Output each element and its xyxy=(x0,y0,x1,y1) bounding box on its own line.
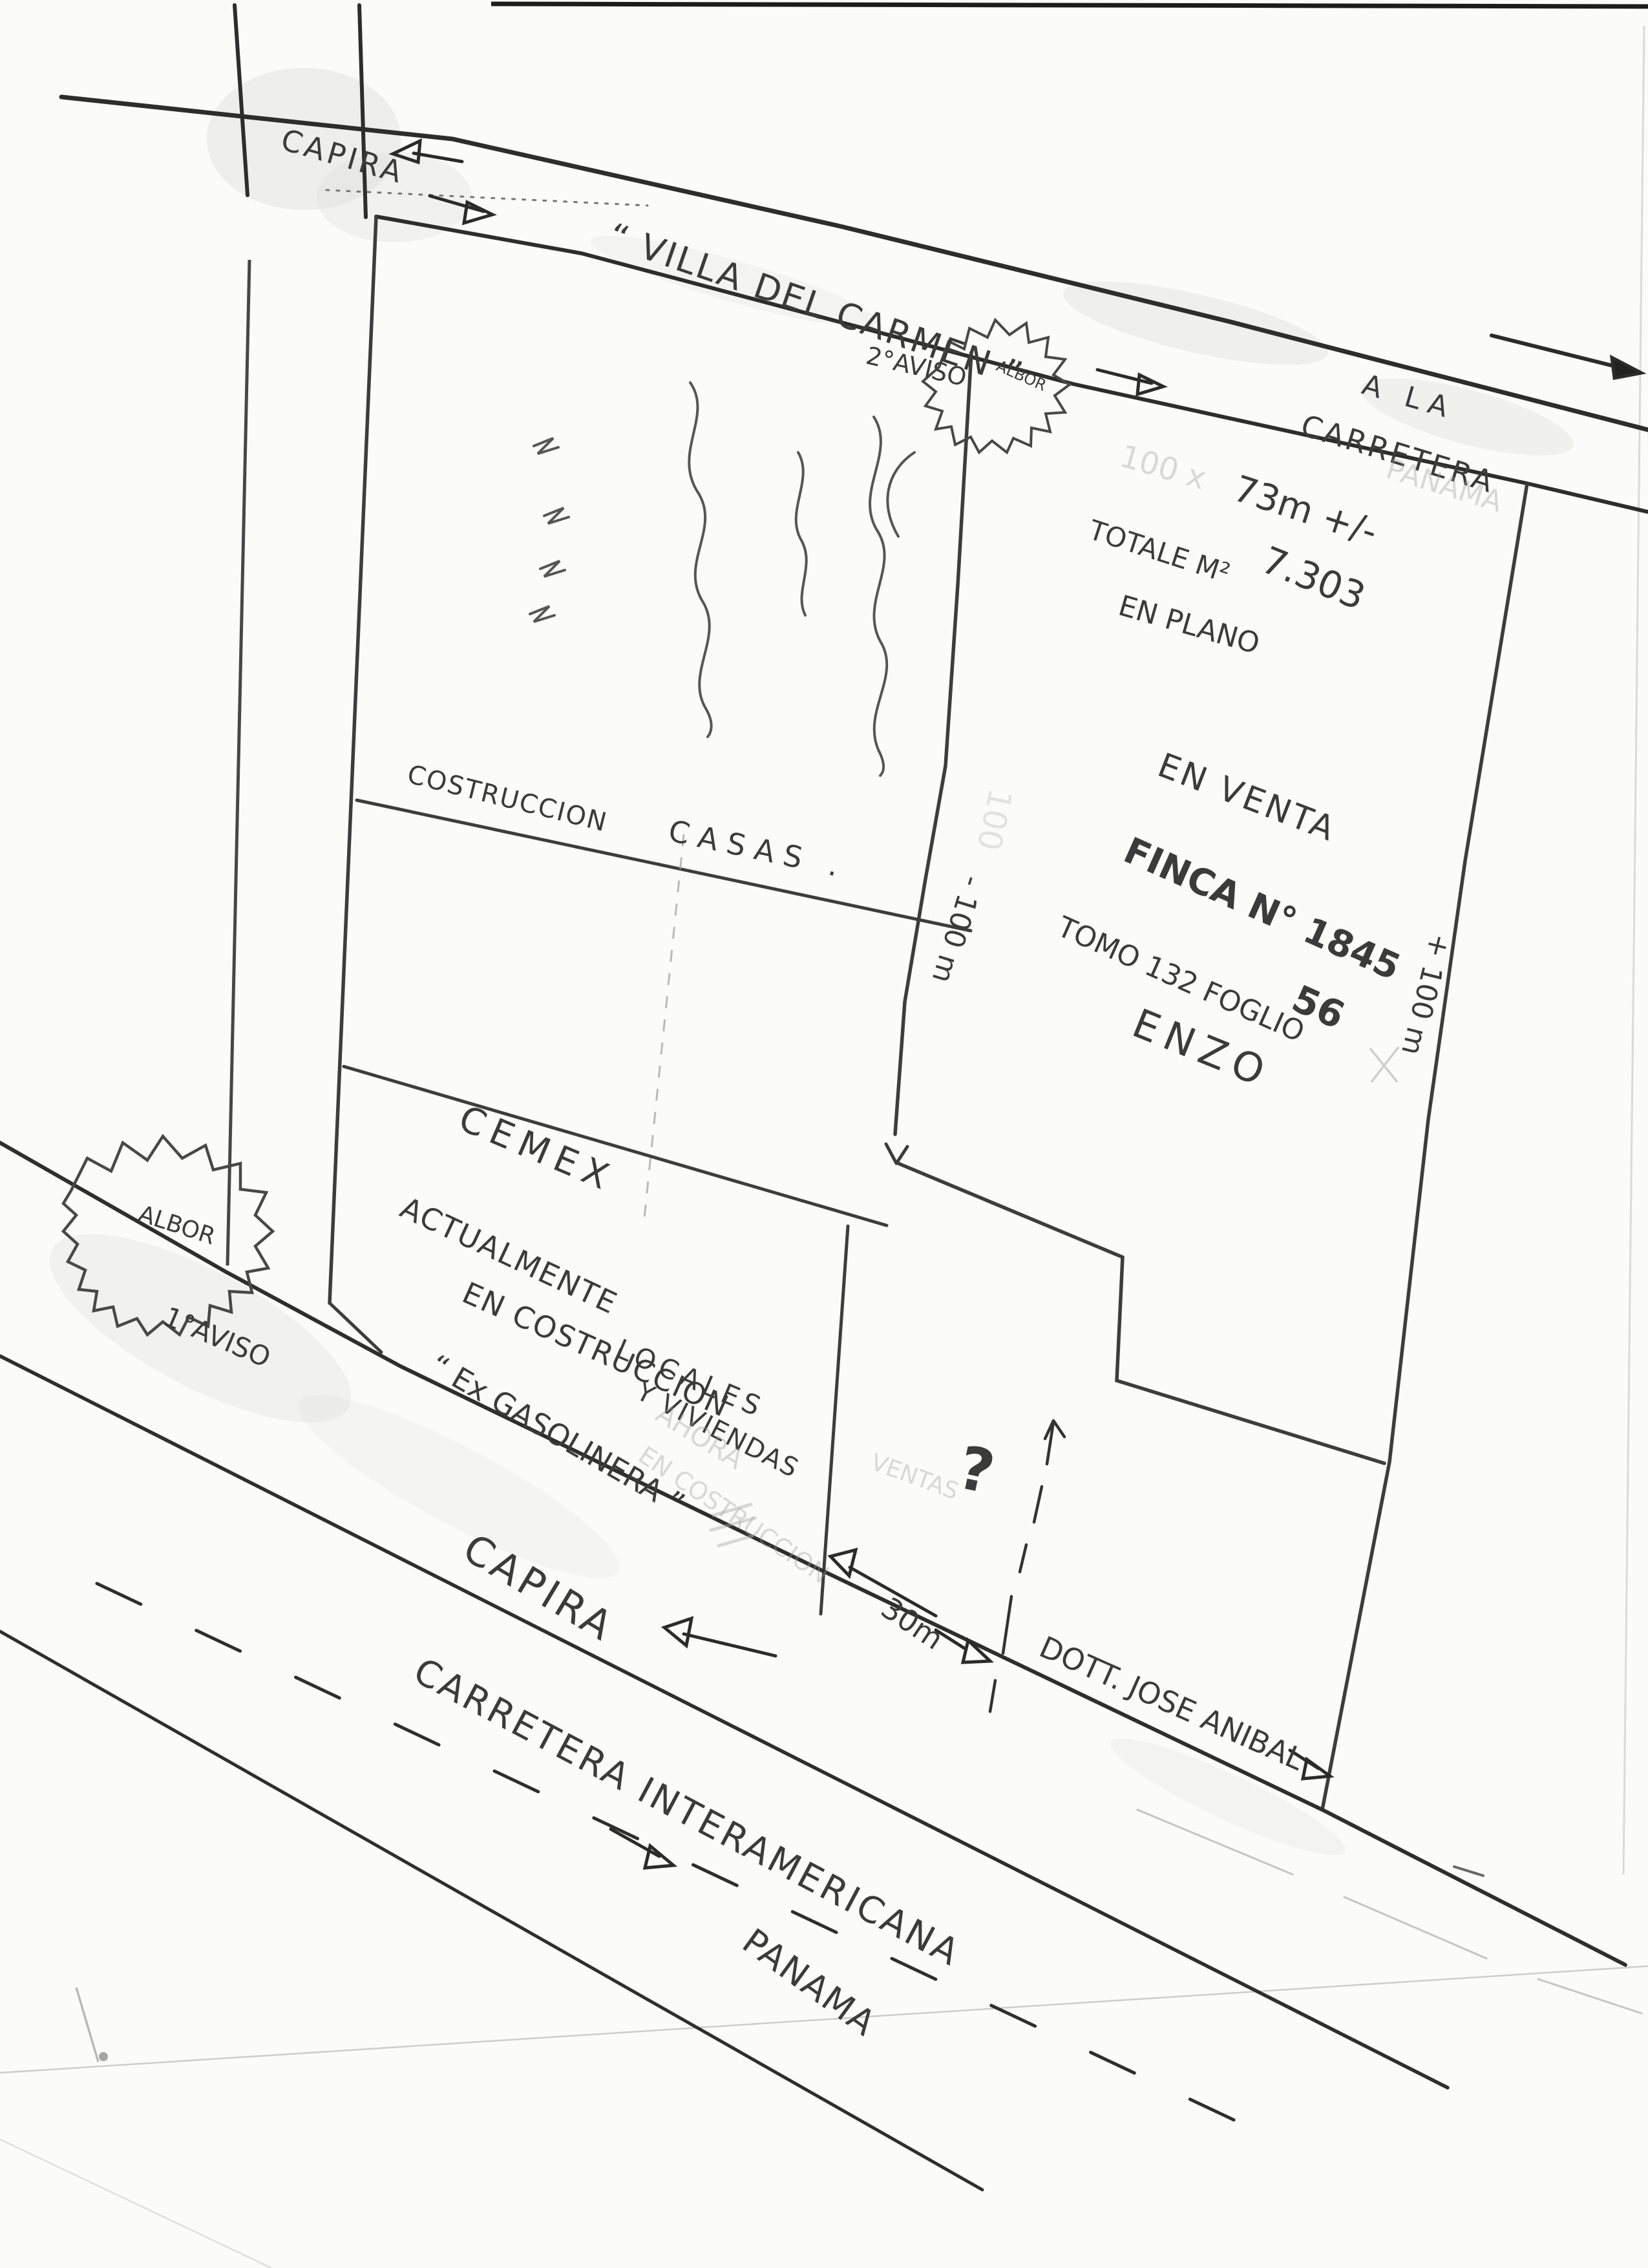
faint-bottom-left-line xyxy=(0,2139,271,2268)
panama-right-arrow-icon xyxy=(611,1829,673,1868)
step-boundary-line xyxy=(898,1163,1384,1463)
zigzag-mark xyxy=(530,606,555,622)
smudge xyxy=(281,1368,637,1606)
subparcel-boundaries xyxy=(821,1163,1384,1614)
en-venta-label: EN VENTA xyxy=(1152,746,1342,849)
costruccion-label: COSTRUCCION xyxy=(405,759,611,838)
stray-dash xyxy=(1454,1867,1483,1876)
wavy-line xyxy=(689,383,711,737)
stray-curve xyxy=(887,452,914,536)
sketch-canvas: CAPIRA “ VILLA DEL CARMEN ” 2°AVISO ALBO… xyxy=(0,0,1648,2268)
scan-right-edge-line xyxy=(1623,26,1644,1874)
vegetation-squiggles xyxy=(530,383,887,776)
capira-bottom-left-arrow-icon xyxy=(664,1618,776,1656)
ventas-faint-label: VENTAS xyxy=(867,1449,962,1505)
center-divider-line xyxy=(895,352,971,1134)
smudge xyxy=(1057,264,1334,382)
totale-label: TOTALE M² xyxy=(1084,514,1234,589)
en-plano-label: EN PLANO xyxy=(1115,589,1263,661)
depth-middle-label: - 100 m xyxy=(925,872,989,987)
a-la-carretera-arrow-shaft xyxy=(1492,335,1623,368)
scanned-sketch-page: CAPIRA “ VILLA DEL CARMEN ” 2°AVISO ALBO… xyxy=(0,0,1648,2268)
pencil-tick xyxy=(76,1987,98,2062)
scan-top-edge-line xyxy=(491,4,1648,6)
zigzag-mark xyxy=(534,438,558,454)
casas-divider-line xyxy=(357,800,971,931)
wavy-line xyxy=(870,417,887,776)
center-divider xyxy=(886,352,971,1163)
right-parcel-east-boundary xyxy=(1322,483,1527,1810)
carretera-interamericana-label: CARRETERA INTERAMERICANA xyxy=(407,1650,967,1975)
left-parcel-west-boundary xyxy=(330,217,376,1303)
pencil-x-mark xyxy=(1370,1047,1399,1082)
left-strip-line xyxy=(227,260,249,1266)
cemex-label: CEMEX xyxy=(453,1097,622,1201)
faint-100-label: 100 xyxy=(969,786,1019,854)
totale-value: 7.303 xyxy=(1256,538,1371,619)
a-la-carretera-arrow-icon xyxy=(1612,357,1642,378)
zigzag-mark xyxy=(544,508,569,524)
width-dim-label: 73m +/- xyxy=(1229,467,1382,553)
question-mark-label: ? xyxy=(952,1433,1000,1508)
wavy-line xyxy=(796,452,807,615)
up-arrow-icon xyxy=(1045,1421,1064,1439)
zigzag-mark xyxy=(540,561,565,577)
panama-bottom-label: PANAMA xyxy=(735,1921,883,2044)
left-parcel-corner xyxy=(330,1303,381,1352)
pencil-dot xyxy=(99,2052,108,2061)
down-arrow-icon xyxy=(886,1144,907,1163)
faint-100x-label: 100 x xyxy=(1116,438,1210,497)
casas-label: CASAS . xyxy=(666,813,851,885)
